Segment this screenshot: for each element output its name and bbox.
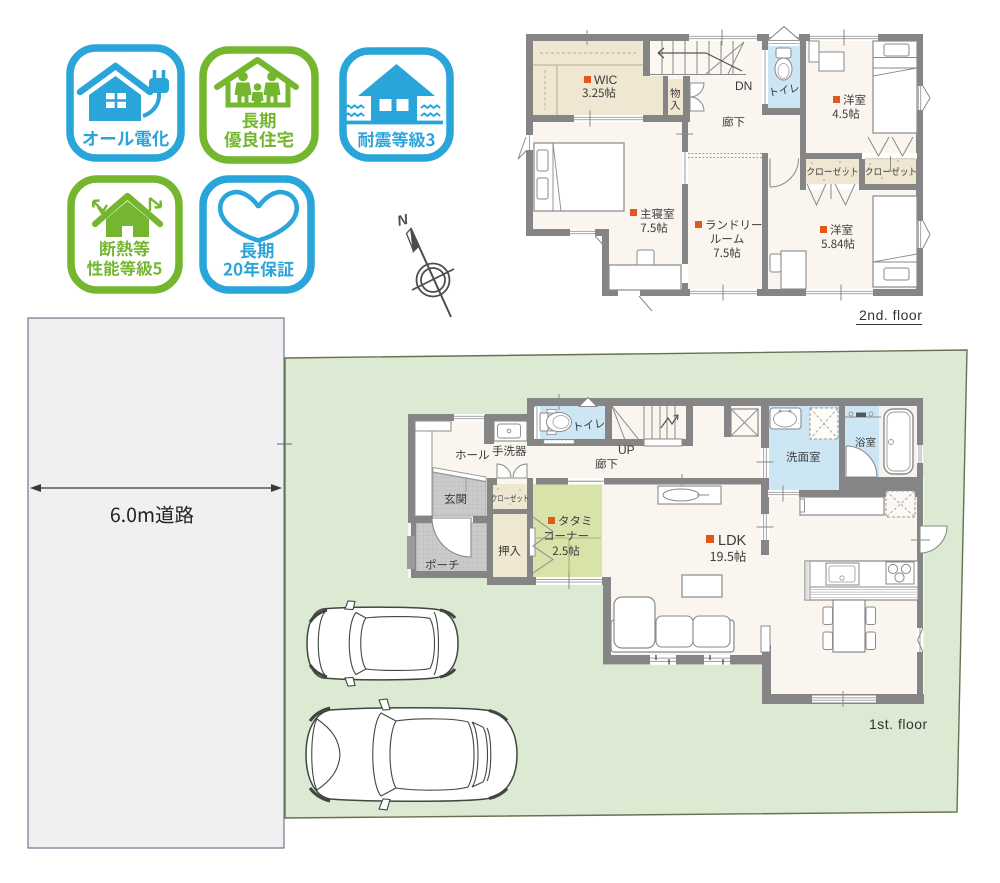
- svg-text:1st. floor: 1st. floor: [869, 716, 928, 732]
- svg-text:WIC: WIC: [594, 73, 618, 87]
- svg-text:LDK: LDK: [718, 533, 747, 549]
- svg-text:DN: DN: [735, 79, 752, 93]
- svg-text:UP: UP: [618, 443, 635, 457]
- svg-text:2nd. floor: 2nd. floor: [859, 307, 922, 323]
